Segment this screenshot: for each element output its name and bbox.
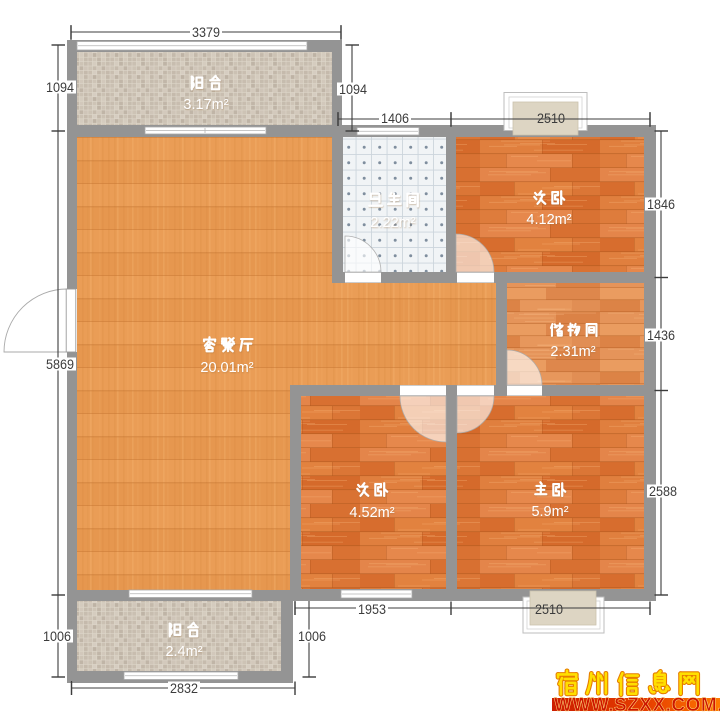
svg-text:1006: 1006 [298,628,326,644]
svg-text:1006: 1006 [43,628,71,644]
svg-text:4.52m²: 4.52m² [349,505,394,521]
svg-text:3379: 3379 [192,24,220,40]
svg-text:20.01m²: 20.01m² [200,360,253,376]
svg-text:1094: 1094 [339,81,367,97]
svg-text:2510: 2510 [535,601,563,617]
svg-text:5.9m²: 5.9m² [531,504,568,520]
svg-text:3.17m²: 3.17m² [183,97,228,113]
svg-text:1094: 1094 [46,79,74,95]
svg-text:2510: 2510 [537,110,565,126]
svg-text:4.12m²: 4.12m² [526,212,571,228]
svg-text:2.4m²: 2.4m² [165,644,202,660]
svg-text:WWW.SZXX.COM.C: WWW.SZXX.COM.C [554,695,720,716]
svg-text:1953: 1953 [358,601,386,617]
svg-text:1406: 1406 [381,110,409,126]
svg-text:1436: 1436 [647,327,675,343]
svg-text:2.31m²: 2.31m² [550,344,595,360]
svg-text:2832: 2832 [170,680,198,696]
svg-text:1846: 1846 [647,196,675,212]
svg-text:2.22m²: 2.22m² [370,215,415,231]
svg-text:5869: 5869 [46,356,74,372]
svg-text:2588: 2588 [649,483,677,499]
